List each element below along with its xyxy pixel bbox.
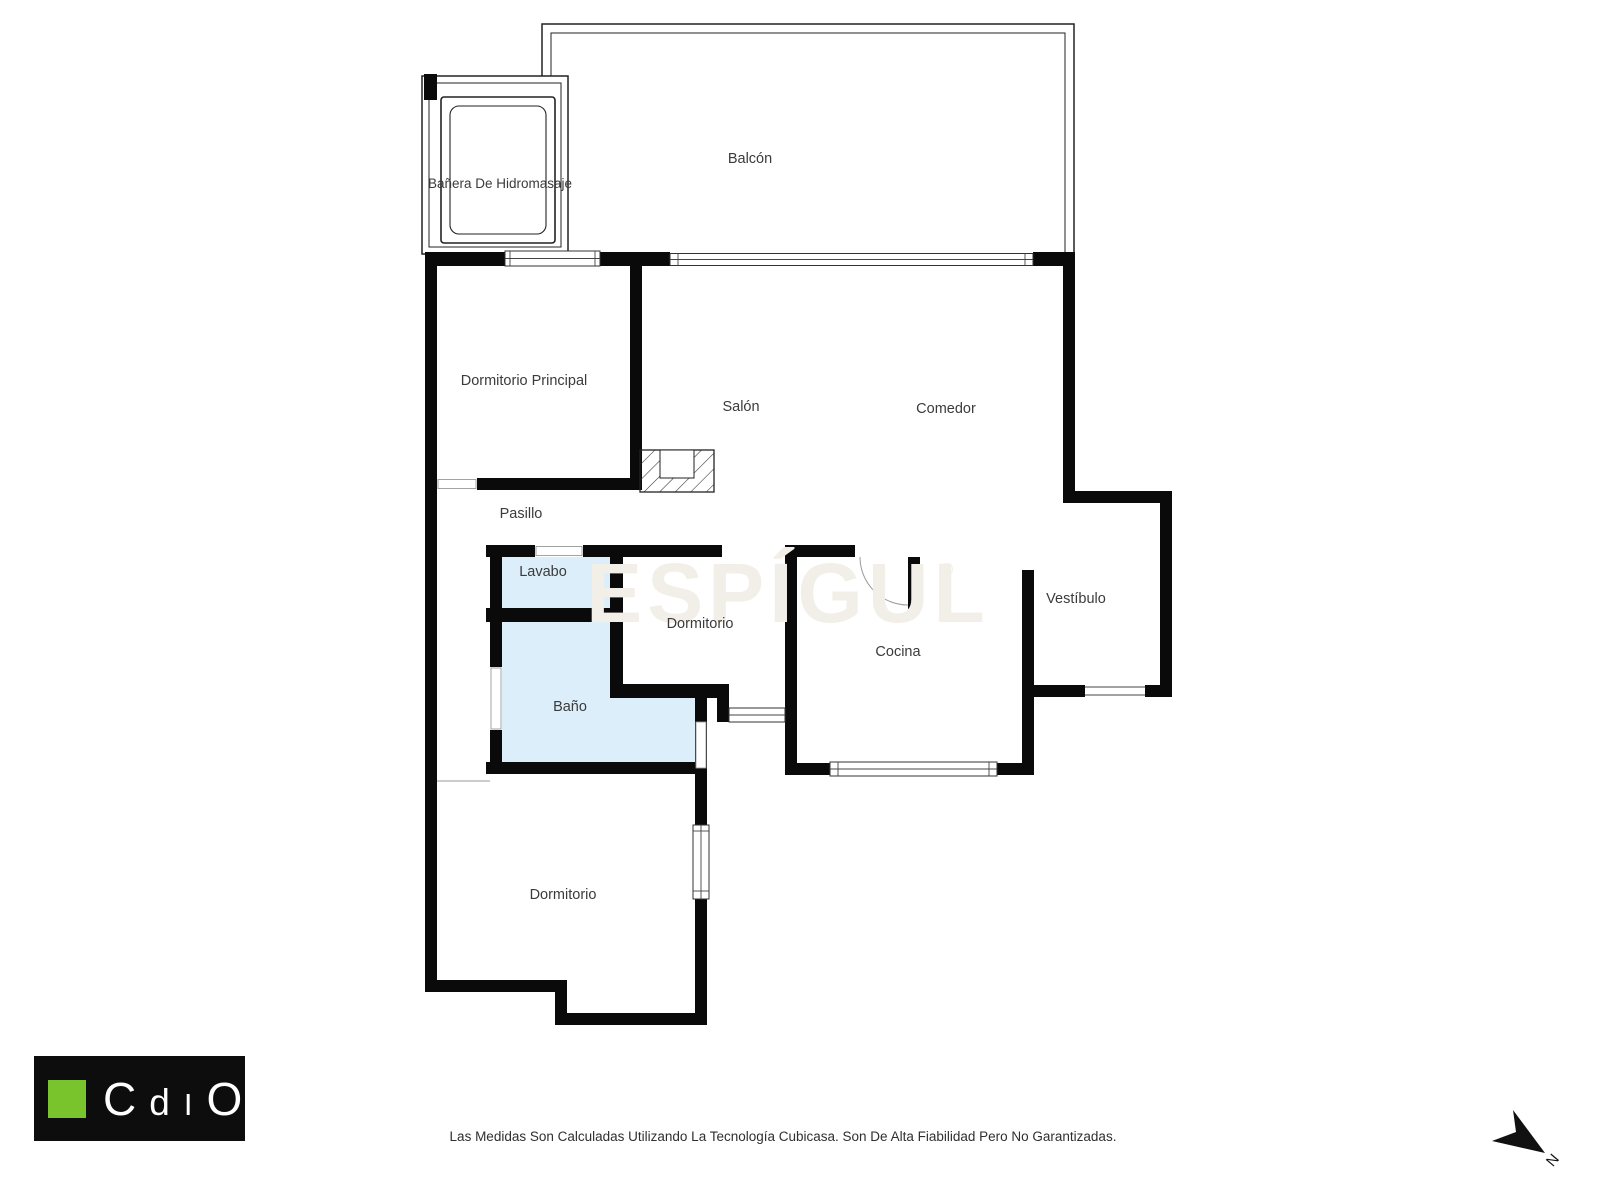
floor-plan-canvas: ESPÍGUL ® Bañera De Hidromasaje Balcón D… [0,0,1600,1200]
north-label: N [1543,1151,1563,1170]
logo-letter: O [206,1072,242,1126]
room-label-comedor: Comedor [916,401,976,417]
room-label-dormitorio-medio: Dormitorio [667,616,734,632]
room-label-vestibulo: Vestíbulo [1046,591,1106,607]
logo-letter: C [103,1072,136,1126]
master-bedroom-door [438,480,476,489]
logo-green-square-icon [48,1080,86,1118]
terrace-window [505,251,600,266]
nook-window [729,708,785,722]
vestibule-threshold [1085,686,1145,696]
logo-letters: C d I O [103,1072,242,1126]
room-label-balcon: Balcón [728,151,772,167]
balcony-outline [542,24,1074,262]
room-label-lavabo: Lavabo [519,564,567,580]
room-label-bano: Baño [553,699,587,715]
kitchen-window [830,762,997,776]
room-label-dormitorio-inferior: Dormitorio [530,887,597,903]
chimney-hatch [640,450,714,492]
lavabo-door [536,547,582,556]
room-label-dormitorio-principal: Dormitorio Principal [461,373,588,389]
north-arrow-icon [1492,1110,1545,1153]
watermark-registered: ® [941,560,954,579]
room-label-cocina: Cocina [875,644,921,660]
watermark: ESPÍGUL ® [586,546,990,640]
watermark-text: ESPÍGUL [586,546,990,640]
room-label-banera: Bañera De Hidromasaje [428,176,572,191]
footer-disclaimer: Las Medidas Son Calculadas Utilizando La… [450,1129,1117,1144]
room-label-pasillo: Pasillo [500,506,543,522]
lower-bedroom-window [693,825,709,899]
brand-logo: C d I O [34,1056,245,1141]
hot-tub-terrace [422,74,568,254]
balcony-slider-window [670,254,1033,266]
room-label-salon: Salón [722,399,759,415]
north-arrow: N [1492,1110,1563,1170]
logo-letter: d [149,1082,170,1124]
bath-side-door [696,722,706,768]
bathroom-door [491,668,501,729]
logo-letter: I [184,1087,193,1123]
bathtub-icon [441,97,555,243]
